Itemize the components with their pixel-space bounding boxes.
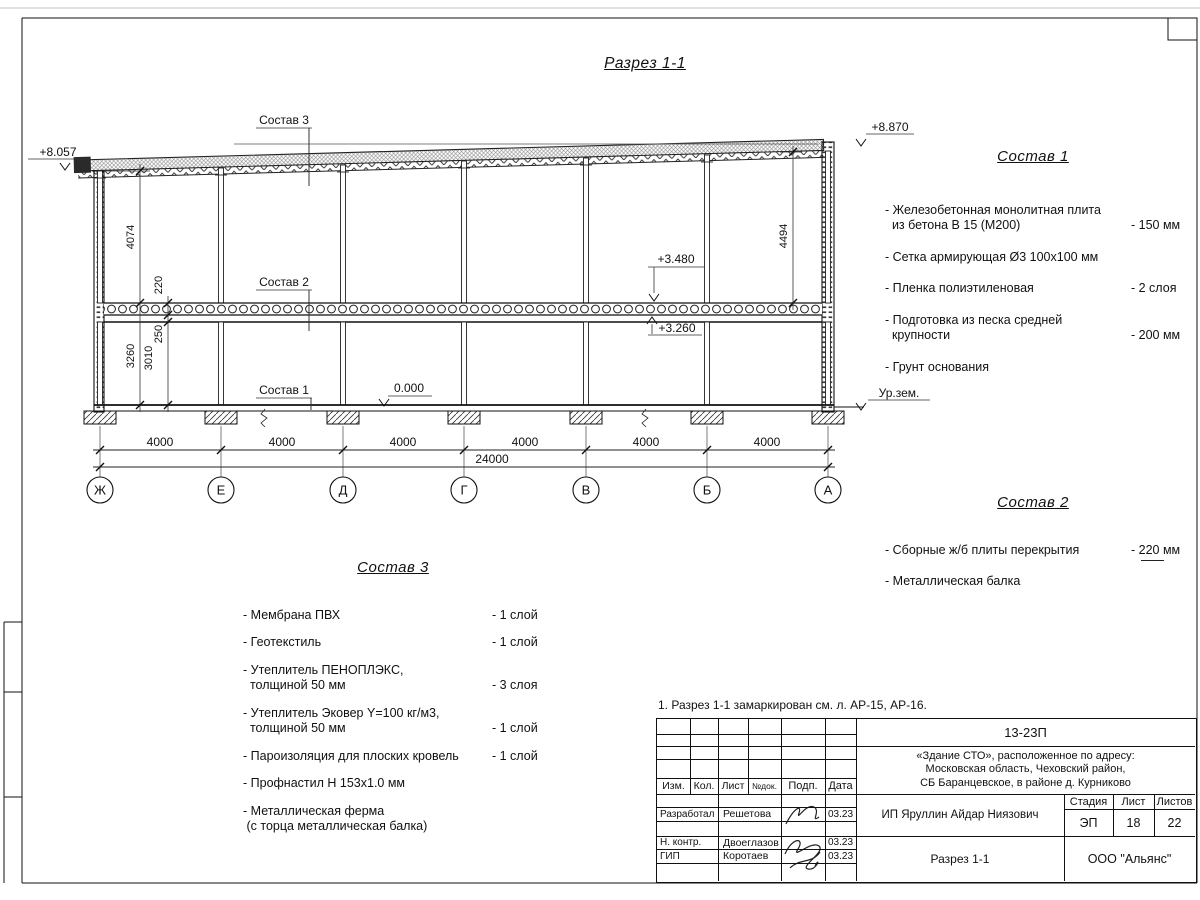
sheet-number: 18 — [1113, 809, 1154, 836]
sostav2-panel: Состав 2 - Сборные ж/б плиты перекрытия-… — [885, 495, 1181, 606]
list-item: - Утеплитель ПЕНОПЛЭКС, толщиной 50 мм- … — [243, 663, 543, 694]
svg-text:4000: 4000 — [512, 435, 539, 449]
client-name: ИП Яруллин Айдар Ниязович — [856, 794, 1064, 836]
horizontal-dimensions: 4000 4000 4000 4000 4000 4000 24000 — [93, 426, 835, 477]
project-code: 13-23П — [856, 719, 1195, 746]
elev-roof-left: +8.057 — [39, 145, 76, 159]
sheet-note: 1. Разрез 1-1 замаркирован см. л. АР-15,… — [658, 698, 927, 712]
col-kol: Кол. — [690, 778, 718, 794]
svg-text:4000: 4000 — [633, 435, 660, 449]
list-item: - Сетка армирующая Ø3 100х100 мм — [885, 250, 1181, 266]
list-item: - Утеплитель Эковер Y=100 кг/м3, толщино… — [243, 706, 543, 737]
stage-value: ЭП — [1064, 809, 1113, 836]
value-underline — [1141, 560, 1164, 561]
svg-text:4000: 4000 — [269, 435, 296, 449]
elev-slab-top: +3.480 — [657, 252, 694, 266]
staff-role: Разработал — [657, 807, 721, 821]
lower-columns — [98, 322, 831, 405]
roof — [74, 136, 824, 178]
label-sostav3: Состав 3 — [259, 113, 309, 127]
titleblock-line — [657, 863, 856, 864]
svg-text:4000: 4000 — [390, 435, 417, 449]
vertical-dimensions — [104, 146, 802, 412]
col-podp: Подп. — [781, 778, 825, 794]
floor-slab — [104, 303, 822, 322]
sheet-label: Лист — [1113, 794, 1154, 809]
sostav2-heading: Состав 2 — [885, 495, 1181, 511]
dim-250: 250 — [153, 325, 165, 343]
project-address: «Здание СТО», расположенное по адресу: М… — [856, 746, 1195, 794]
list-item: - Металлическая ферма (с торца металличе… — [243, 804, 543, 835]
list-item: - Пароизоляция для плоских кровель- 1 сл… — [243, 749, 543, 765]
list-item: - Металлическая балка — [885, 574, 1181, 590]
staff-date: 03.23 — [825, 836, 856, 849]
list-item: - Мембрана ПВХ- 1 слой — [243, 608, 543, 624]
staff-role: Н. контр. — [657, 836, 721, 849]
elev-roof-right: +8.870 — [871, 120, 908, 134]
break-mark — [261, 409, 267, 427]
sheets-total: 22 — [1154, 809, 1195, 836]
elev-floor: 0.000 — [394, 381, 424, 395]
svg-text:Б: Б — [703, 483, 712, 498]
dim-4074: 4074 — [125, 225, 137, 249]
ground-floor — [84, 405, 864, 427]
drawing-title: Разрез 1-1 — [856, 836, 1064, 881]
axis-bubbles: Ж Е Д Г В Б А — [87, 477, 841, 503]
col-izm: Изм. — [657, 778, 690, 794]
label-sostav1: Состав 1 — [259, 383, 309, 397]
svg-text:В: В — [582, 483, 591, 498]
page-title: Разрез 1-1 — [545, 55, 745, 73]
staff-name: Решетова — [720, 807, 784, 821]
stage-label: Стадия — [1064, 794, 1113, 809]
titleblock-line — [657, 734, 856, 735]
staff-date: 03.23 — [825, 807, 856, 821]
drawing-sheet: { "sheet": { "title": "Разрез 1-1", "not… — [0, 0, 1200, 900]
svg-text:Г: Г — [460, 483, 467, 498]
svg-text:Д: Д — [339, 483, 348, 498]
titleblock-line — [657, 759, 856, 760]
dim-220: 220 — [153, 276, 165, 294]
dim-4494: 4494 — [778, 224, 790, 248]
list-item: - Железобетонная монолитная плита из бет… — [885, 203, 1181, 234]
col-list: Лист — [718, 778, 748, 794]
list-item: - Подготовка из песка средней крупности-… — [885, 313, 1181, 344]
svg-text:Ж: Ж — [94, 483, 106, 498]
sostav3-panel: Состав 3 - Мембрана ПВХ- 1 слой - Геотек… — [243, 560, 543, 847]
vertical-dim-labels: 4074 3260 220 250 3010 4494 — [125, 224, 790, 370]
total-dim-label: 24000 — [475, 452, 509, 466]
foundation-pads — [84, 411, 844, 424]
dim-3260: 3260 — [125, 344, 137, 368]
elev-slab-bottom: +3.260 — [658, 321, 695, 335]
svg-text:4000: 4000 — [147, 435, 174, 449]
dim-3010: 3010 — [143, 346, 155, 370]
label-sostav2: Состав 2 — [259, 275, 309, 289]
titleblock-line — [657, 821, 856, 822]
list-item: - Геотекстиль- 1 слой — [243, 635, 543, 651]
break-mark — [642, 409, 648, 427]
staff-name: Двоеглазов — [720, 836, 784, 849]
company-name: ООО "Альянс" — [1064, 836, 1195, 881]
sostav1-panel: Состав 1 - Железобетонная монолитная пли… — [885, 149, 1181, 391]
list-item: - Пленка полиэтиленовая- 2 слоя — [885, 281, 1181, 297]
svg-text:А: А — [824, 483, 833, 498]
list-item: - Сборные ж/б плиты перекрытия- 220 мм — [885, 543, 1181, 559]
staff-date: 03.23 — [825, 849, 856, 863]
col-data: Дата — [825, 778, 856, 794]
sostav1-heading: Состав 1 — [885, 149, 1181, 165]
col-ndok: №док. — [748, 778, 781, 794]
svg-text:Е: Е — [217, 483, 226, 498]
sostav3-heading: Состав 3 — [243, 560, 543, 576]
list-item: - Профнастил Н 153х1.0 мм — [243, 776, 543, 792]
staff-role: ГИП — [657, 849, 721, 863]
list-item: - Грунт основания — [885, 360, 1181, 376]
svg-text:4000: 4000 — [754, 435, 781, 449]
staff-name: Коротаев — [720, 849, 784, 863]
sheets-label: Листов — [1154, 794, 1195, 809]
title-block: Изм. Кол. Лист №док. Подп. Дата Разработ… — [656, 718, 1197, 883]
